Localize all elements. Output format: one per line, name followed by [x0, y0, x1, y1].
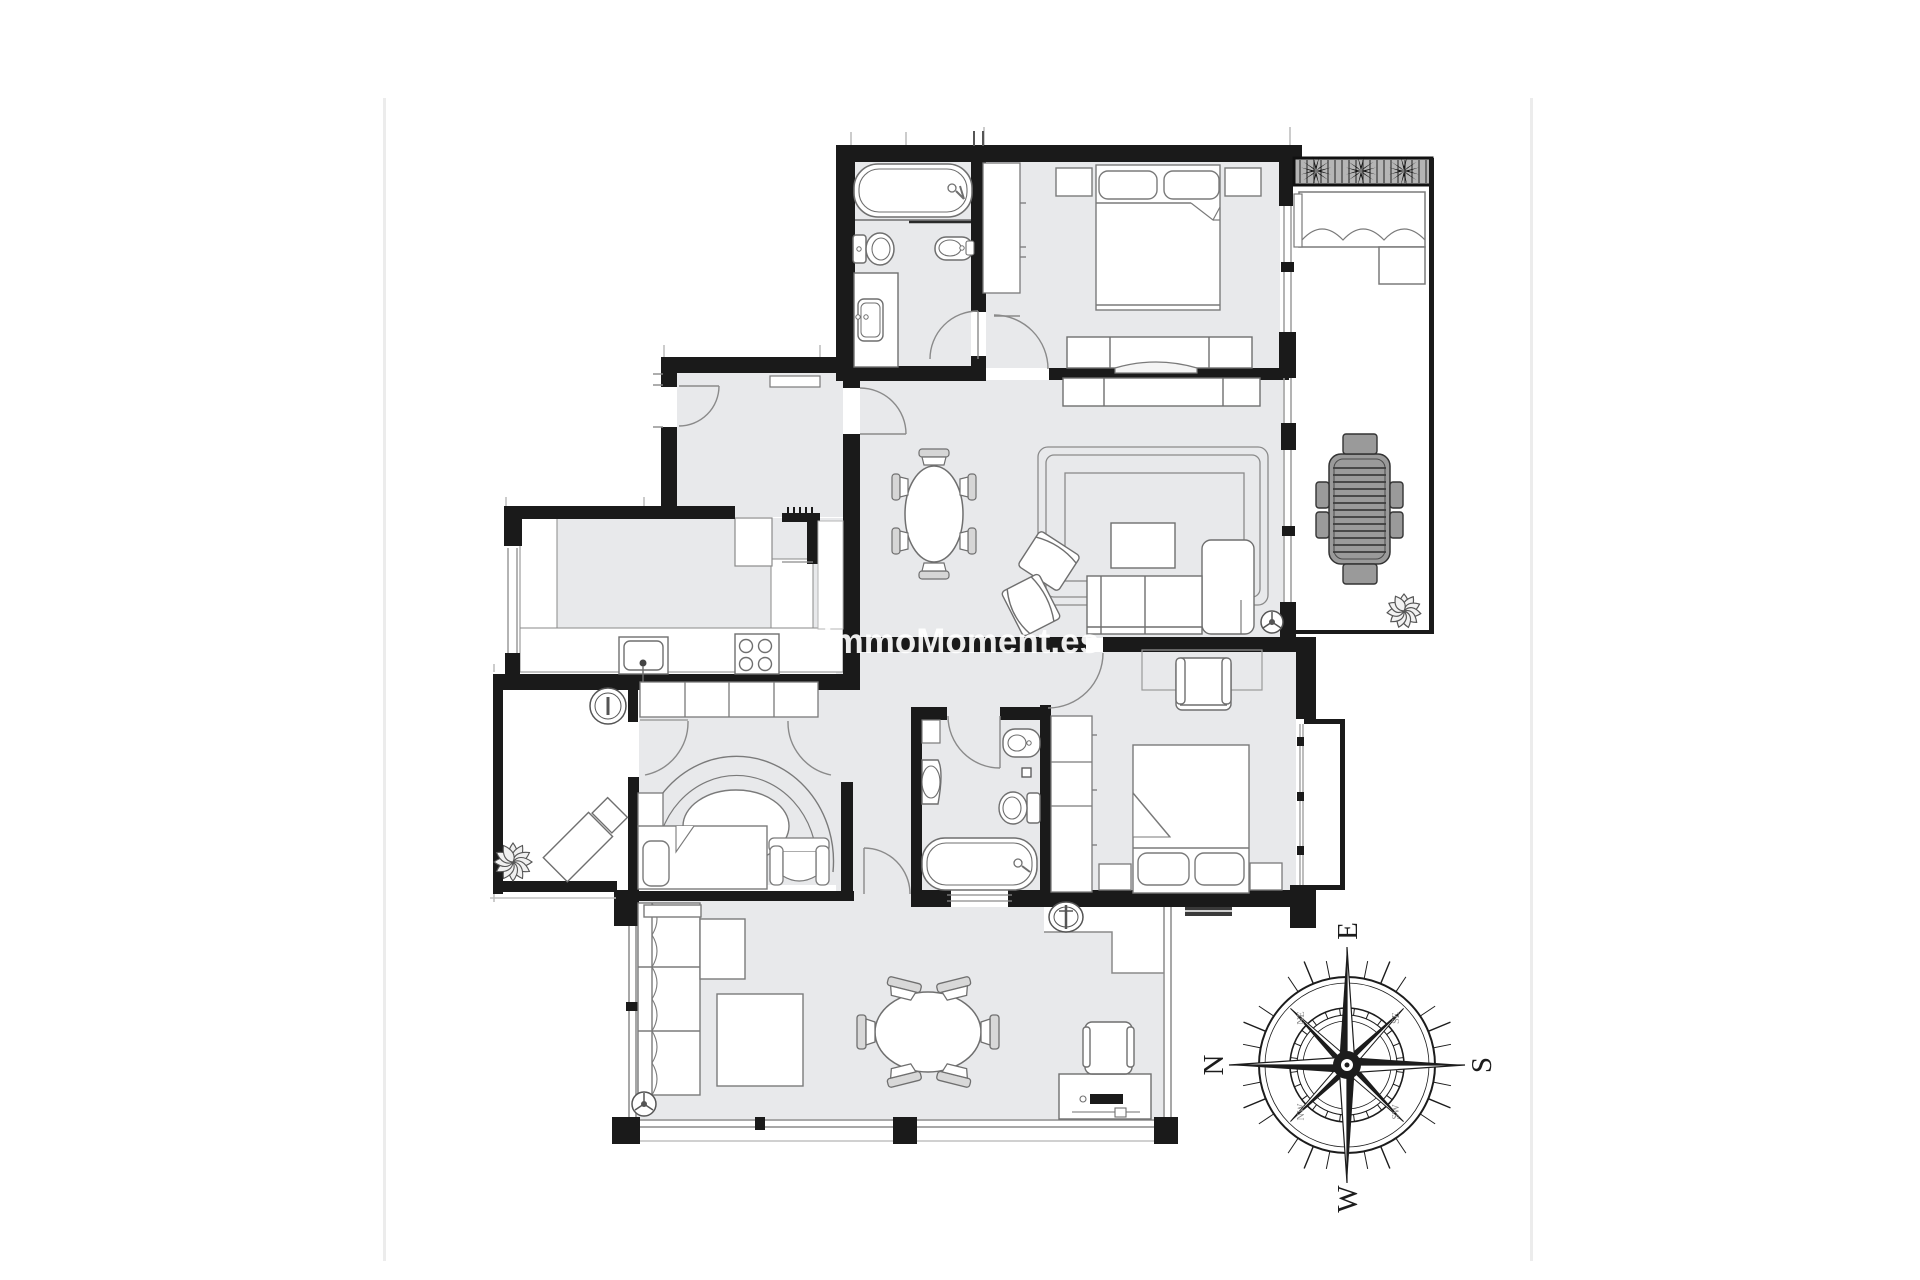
svg-text:N: N	[1198, 1054, 1230, 1075]
svg-text:NW: NW	[1296, 1103, 1307, 1120]
svg-text:NE: NE	[1296, 1011, 1307, 1024]
svg-text:W: W	[1332, 1185, 1364, 1213]
svg-text:ImmoMoment.es: ImmoMoment.es	[823, 622, 1099, 661]
svg-text:SE: SE	[1391, 1012, 1402, 1024]
svg-text:E: E	[1332, 922, 1364, 940]
svg-text:S: S	[1466, 1057, 1498, 1073]
svg-text:SW: SW	[1391, 1104, 1402, 1120]
